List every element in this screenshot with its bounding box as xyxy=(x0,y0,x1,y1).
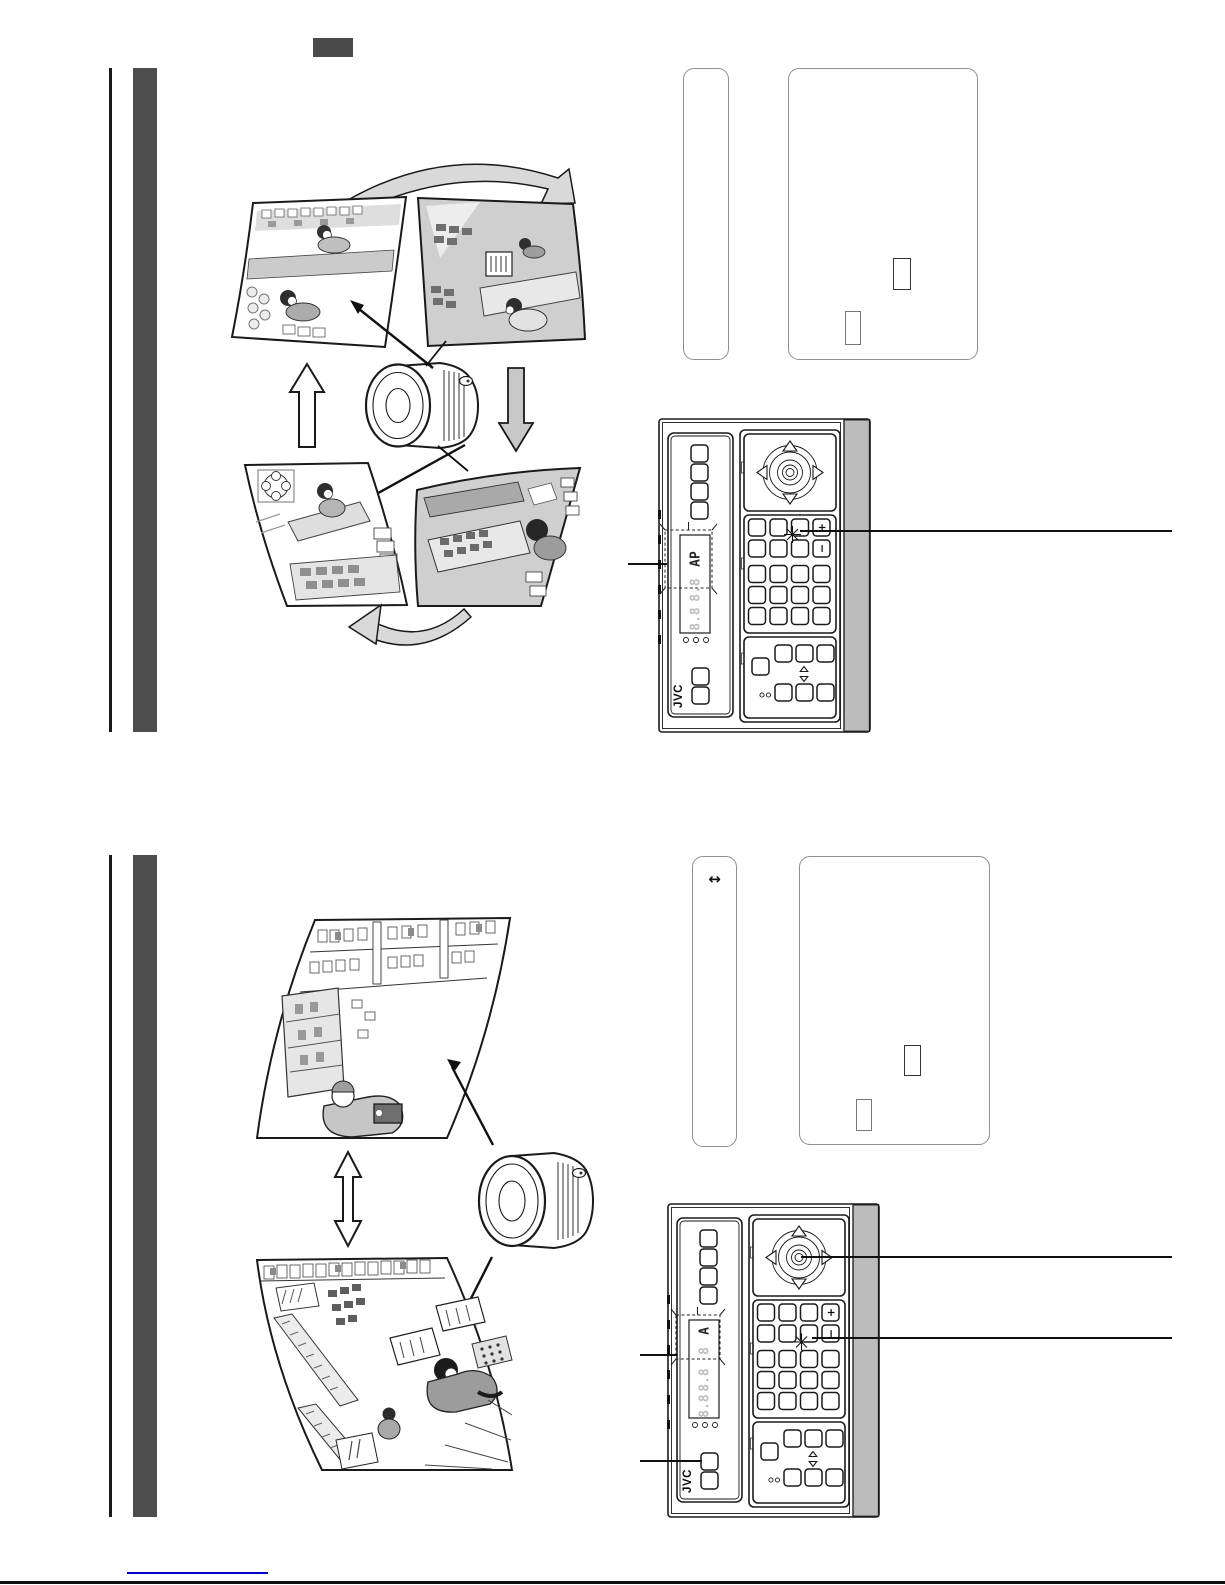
lcd-ghost-chars: 8.8 xyxy=(689,607,704,631)
pan-down-arrow-icon xyxy=(499,368,533,451)
note-box-top xyxy=(788,68,978,360)
lcd-ghost-chars: 8.8 xyxy=(698,1368,713,1392)
lcd-active-chars: AP xyxy=(689,551,704,567)
minus-key-label: − xyxy=(816,544,829,553)
tilt-double-arrow-icon xyxy=(335,1152,361,1246)
margin-rule-bottom xyxy=(109,855,112,1517)
scene-lower-right xyxy=(415,468,580,606)
callout-line-joystick xyxy=(801,1256,1172,1258)
menu-key xyxy=(700,1268,717,1285)
figure-auto-pan-rotation xyxy=(228,140,628,675)
manual-page: AP 8.8 8.8 JVC xyxy=(0,0,1225,1585)
joystick-group xyxy=(744,434,836,511)
lcd-ghost-chars: 8.8 xyxy=(698,1394,713,1418)
hyperlink-underline[interactable] xyxy=(127,1572,268,1574)
scene-upper-right xyxy=(418,198,585,346)
power-key xyxy=(701,1472,718,1489)
menu-key xyxy=(691,502,708,519)
power-key xyxy=(692,687,709,704)
scene-lower-left xyxy=(245,463,407,606)
menu-key xyxy=(700,1230,717,1247)
horizontal-range-arrow-icon: ↔ xyxy=(708,870,721,888)
key-callout-rect xyxy=(904,1045,921,1076)
note-box-bottom xyxy=(799,856,990,1145)
note-column-top xyxy=(683,68,729,360)
menu-key xyxy=(700,1249,717,1266)
key-callout-rect xyxy=(893,258,911,290)
lcd-ghost-chars: 8 xyxy=(698,1347,713,1355)
menu-key xyxy=(691,483,708,500)
lcd-ghost-chars: 8.8 xyxy=(689,578,704,602)
camera-lens-illustration xyxy=(479,1153,593,1248)
pan-up-arrow-icon xyxy=(290,364,324,447)
section-bar-top xyxy=(133,68,157,732)
menu-key xyxy=(691,464,708,481)
callout-line-display-bottom xyxy=(640,1354,677,1356)
section-label-box xyxy=(313,38,353,57)
scene-wide-bottom xyxy=(257,1258,512,1470)
page-bottom-rule xyxy=(0,1581,1225,1584)
menu-key xyxy=(700,1287,717,1304)
key-callout-rect xyxy=(856,1099,872,1131)
section-bar-bottom xyxy=(133,855,157,1517)
power-key xyxy=(692,668,709,685)
remote-control-unit-top: AP 8.8 8.8 JVC xyxy=(658,418,871,733)
key-callout-rect xyxy=(845,311,861,345)
margin-rule-top xyxy=(109,68,112,732)
right-deck: + − xyxy=(740,430,840,722)
transport-group xyxy=(753,1422,845,1503)
remote-control-unit-bottom: A 8 8.8 8.8 JVC xyxy=(667,1203,880,1518)
brand-logo: JVC xyxy=(673,684,685,708)
camera-lens-illustration xyxy=(366,363,478,448)
menu-key xyxy=(691,445,708,462)
note-column-bottom: ↔ xyxy=(692,856,737,1147)
transport-group xyxy=(744,637,836,718)
brand-logo: JVC xyxy=(682,1469,694,1493)
figure-pan-positions xyxy=(240,900,620,1485)
left-deck: AP 8.8 8.8 JVC xyxy=(668,433,733,717)
plus-key-label: + xyxy=(825,1308,838,1317)
lcd-active-chars: A xyxy=(698,1327,713,1335)
rotate-arrow-bottom-icon xyxy=(349,605,471,645)
callout-line-keypad-bottom xyxy=(812,1337,1172,1339)
callout-line-power-key xyxy=(640,1460,702,1462)
right-deck: + − xyxy=(749,1215,849,1507)
callout-line-keypad-top xyxy=(800,530,1172,532)
callout-line-display-top xyxy=(628,563,667,565)
keypad-group: + − xyxy=(753,1300,845,1418)
power-key xyxy=(701,1453,718,1470)
